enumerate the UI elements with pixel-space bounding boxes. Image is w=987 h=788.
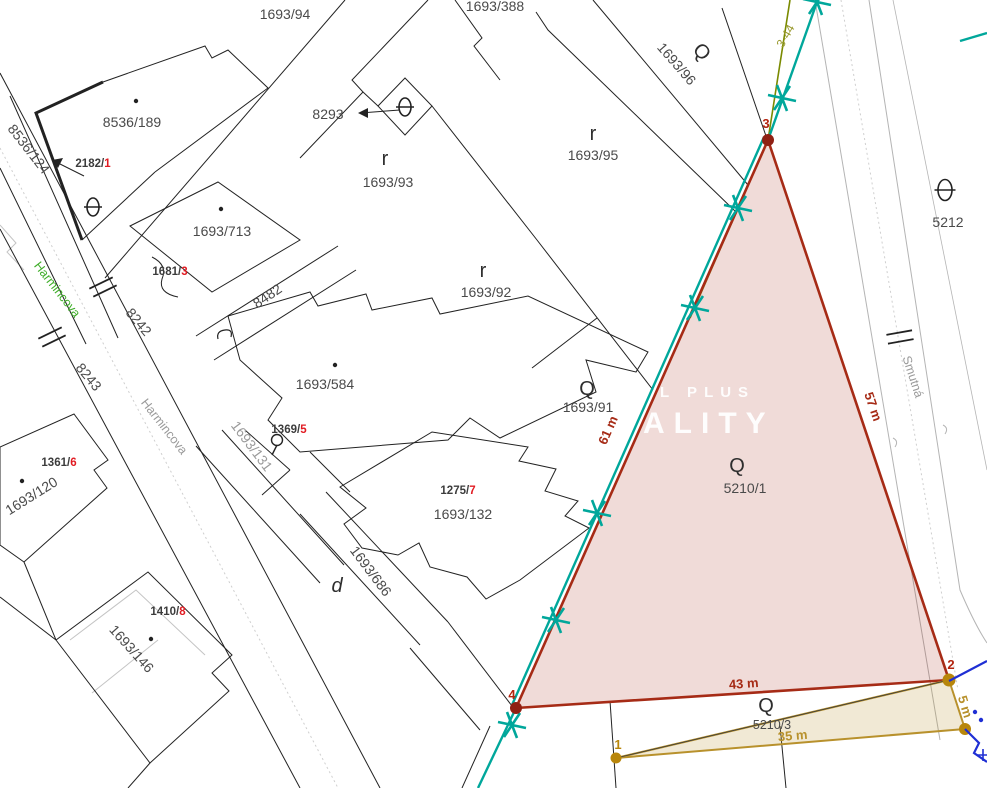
shrub-symbol-icon: r: [590, 123, 597, 145]
parcel-label-8243: 8243: [73, 360, 105, 394]
building-label-1361-6: 1361/6: [41, 457, 76, 469]
parcel-label-1693-95: 1693/95: [568, 147, 619, 163]
boundary-line-label-3-44: 3-44: [773, 22, 797, 50]
parcel-label-1693-93: 1693/93: [363, 174, 414, 190]
parcel-label-8536-124: 8536/124: [5, 121, 54, 177]
shrub-symbol-icon: r: [480, 260, 487, 282]
map-drawing: r r r Q Q Q Q d 8536/189 1693/94 1693/38…: [0, 0, 987, 788]
building-label-1275-7: 1275/7: [440, 485, 475, 497]
parcel-label-1693-584: 1693/584: [296, 376, 355, 392]
building-interior-gray-lines: [0, 225, 205, 693]
measurement-43m: 43 m: [728, 675, 759, 692]
parcel-label-1693-132: 1693/132: [434, 506, 493, 522]
shrub-symbol-icon: r: [382, 148, 389, 170]
watermark-line1: L PLUS: [660, 384, 755, 401]
building-dots: [20, 99, 337, 641]
point-2-label: 2: [947, 657, 954, 672]
parcel-label-1693-388: 1693/388: [466, 0, 525, 14]
point-4-label: 4: [508, 687, 516, 702]
garden-symbol-icon: Q: [579, 378, 595, 400]
cadastral-map-canvas[interactable]: r r r Q Q Q Q d 8536/189 1693/94 1693/38…: [0, 0, 987, 788]
street-label-harmincova-green: Harmincova: [31, 259, 83, 320]
garden-symbol-icon: Q: [758, 695, 774, 717]
parcel-label-8293: 8293: [312, 106, 343, 122]
street-label-harmincova-gray: Harmincova: [138, 396, 190, 457]
parcel-label-5210-1: 5210/1: [724, 480, 767, 496]
watermark: L PLUS ALITY: [643, 384, 775, 440]
street-label-smutna: Smutná: [899, 354, 926, 399]
measurement-35m: 35 m: [777, 727, 808, 745]
water-feature-dots: [973, 710, 983, 722]
point-1-dot: [611, 753, 622, 764]
parcel-label-1693-686: 1693/686: [347, 543, 395, 599]
parcel-label-1693-91: 1693/91: [563, 399, 614, 415]
point-4-dot: [510, 702, 522, 714]
parcel-label-1693-131: 1693/131: [228, 418, 276, 474]
script-d-symbol: d: [331, 575, 343, 597]
point-3-dot: [762, 134, 774, 146]
house-symbol-icons: [84, 98, 956, 216]
parcel-label-1693-92: 1693/92: [461, 284, 512, 300]
parcel-label-8536-189: 8536/189: [103, 114, 162, 130]
parcel-label-8242: 8242: [123, 305, 155, 339]
parcel-label-1693-713: 1693/713: [193, 223, 252, 239]
parcel-label-1693-94: 1693/94: [260, 6, 311, 22]
well-symbol-icon: [272, 435, 283, 456]
parcel-label-5212: 5212: [932, 214, 963, 230]
building-label-1369-5: 1369/5: [271, 424, 307, 436]
watermark-line2: ALITY: [643, 407, 775, 440]
building-label-1410-8: 1410/8: [150, 606, 186, 618]
building-number-labels: 2182/1 1681/3 1369/5 1361/6 1275/7 1410/…: [41, 158, 475, 618]
parcel-label-8482: 8482: [250, 280, 285, 311]
measurement-61m: 61 m: [595, 414, 621, 447]
point-3-label: 3: [762, 116, 769, 131]
building-label-2182-1: 2182/1: [75, 158, 111, 170]
garden-symbol-icon: Q: [688, 39, 715, 65]
garden-symbol-icon: Q: [729, 455, 745, 477]
point-1-label: 1: [614, 737, 621, 752]
parcel-label-1693-146: 1693/146: [106, 622, 157, 676]
parcel-label-1693-120: 1693/120: [2, 473, 60, 518]
building-label-1681-3: 1681/3: [152, 266, 187, 278]
